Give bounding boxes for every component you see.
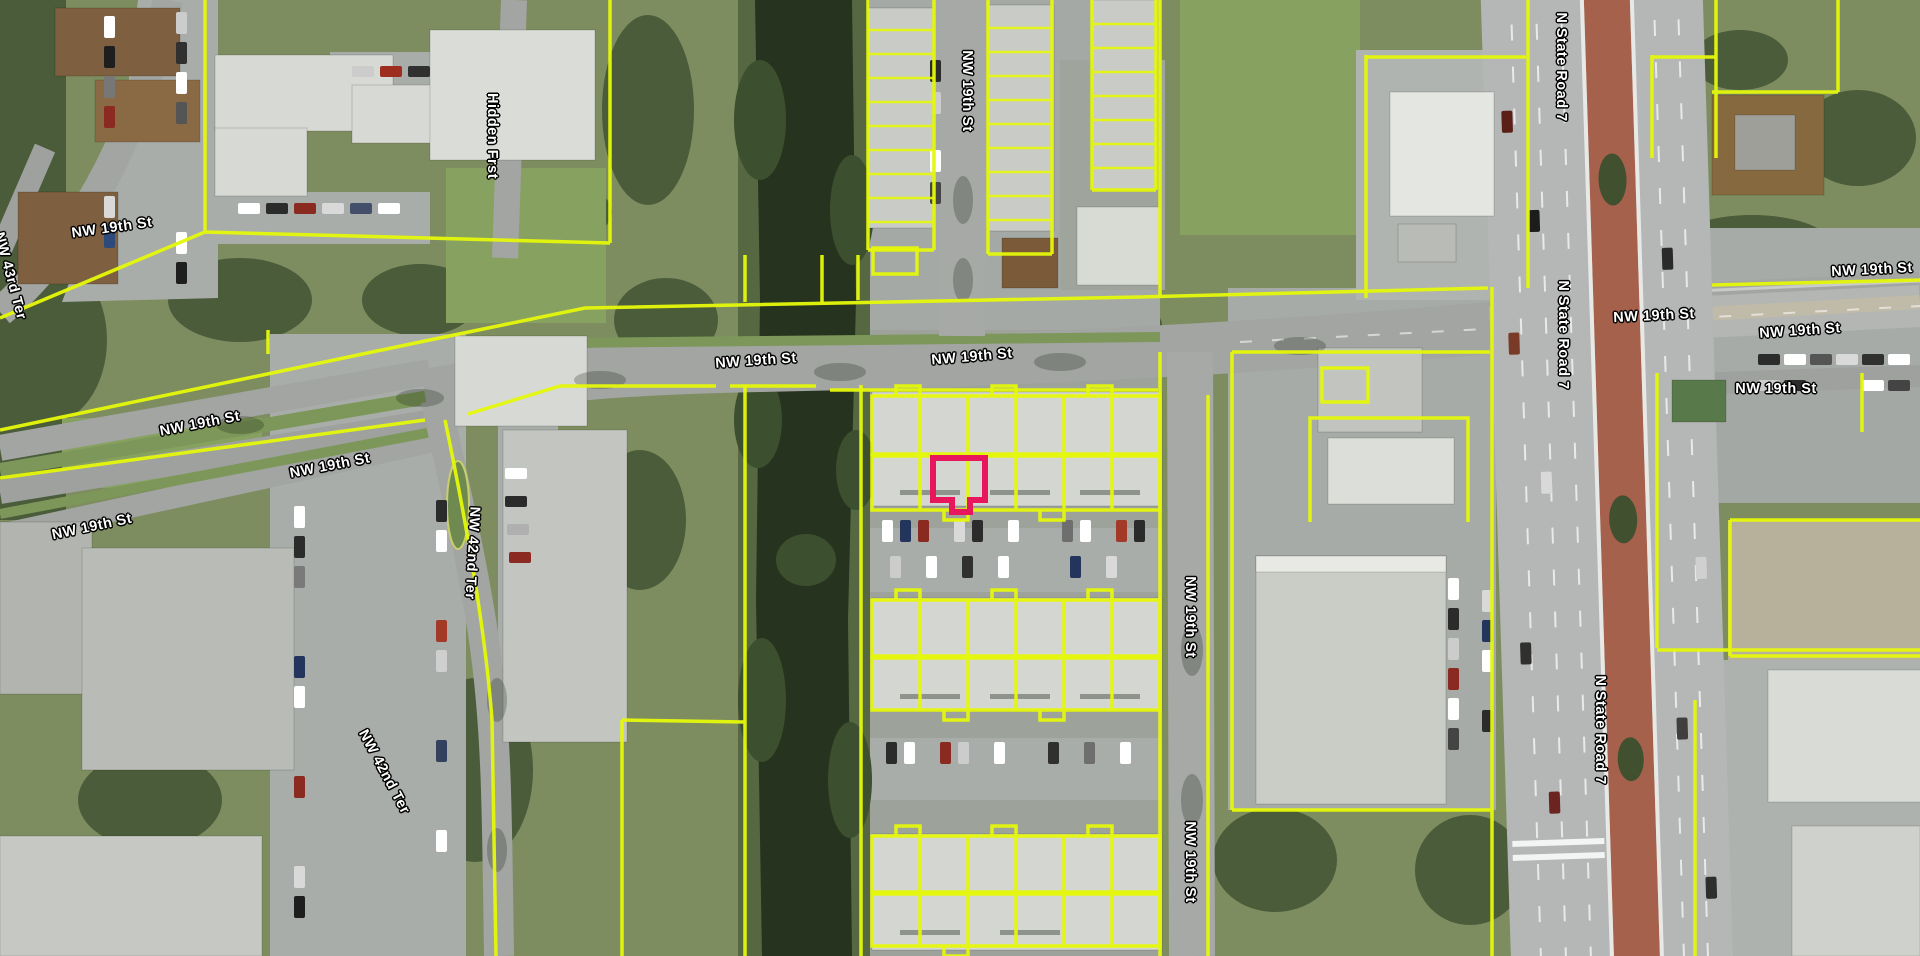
aerial-map[interactable]: NW 19th StNW 43rd TerHidden FrstNW 19th … (0, 0, 1920, 956)
canal (734, 0, 876, 956)
aerial-imagery (0, 0, 1920, 956)
